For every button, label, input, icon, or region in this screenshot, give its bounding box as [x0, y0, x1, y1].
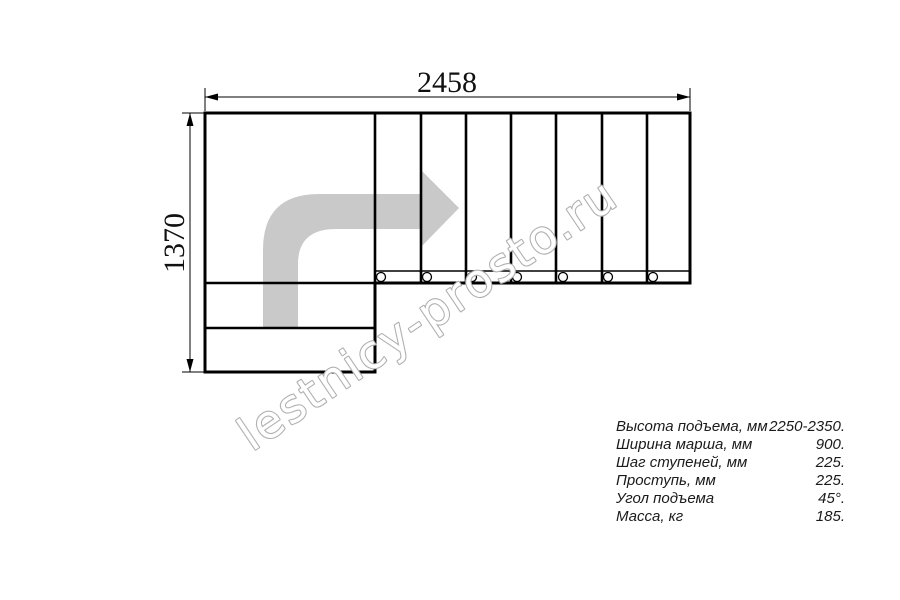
dimension-height: 1370 [158, 113, 204, 372]
spec-row-height: Высота подъема, мм 2250-2350. [616, 418, 845, 436]
dim-arrowhead-left [205, 94, 218, 101]
spec-label: Угол подъема [616, 490, 714, 508]
spec-value: 225. [816, 454, 845, 472]
height-dimension-label: 1370 [158, 213, 191, 273]
spec-value: 45°. [818, 490, 845, 508]
fastener-circle [649, 273, 658, 282]
dim-arrowhead-bottom [187, 359, 194, 372]
spec-label: Проступь, мм [616, 472, 716, 490]
spec-label: Ширина марша, мм [616, 436, 752, 454]
spec-label: Шаг ступеней, мм [616, 454, 747, 472]
spec-row-step-pitch: Шаг ступеней, мм 225. [616, 454, 845, 472]
dimension-width: 2458 [205, 66, 690, 111]
spec-row-march-width: Ширина марша, мм 900. [616, 436, 845, 454]
width-dimension-label: 2458 [417, 66, 477, 99]
spec-row-angle: Угол подъема 45°. [616, 490, 845, 508]
dim-arrowhead-top [187, 113, 194, 126]
fastener-circle [377, 273, 386, 282]
spec-row-tread: Проступь, мм 225. [616, 472, 845, 490]
spec-label: Масса, кг [616, 508, 683, 526]
spec-table: Высота подъема, мм 2250-2350. Ширина мар… [616, 418, 845, 526]
spec-value: 2250-2350. [769, 418, 845, 436]
spec-label: Высота подъема, мм [616, 418, 768, 436]
fastener-circle [604, 273, 613, 282]
spec-value: 225. [816, 472, 845, 490]
spec-value: 185. [816, 508, 845, 526]
dim-arrowhead-right [677, 94, 690, 101]
stair-drawing-page: 2458 1370 lestnicy-prosto.ru Высота подъ… [0, 0, 900, 600]
fastener-circle [559, 273, 568, 282]
spec-row-mass: Масса, кг 185. [616, 508, 845, 526]
spec-value: 900. [816, 436, 845, 454]
